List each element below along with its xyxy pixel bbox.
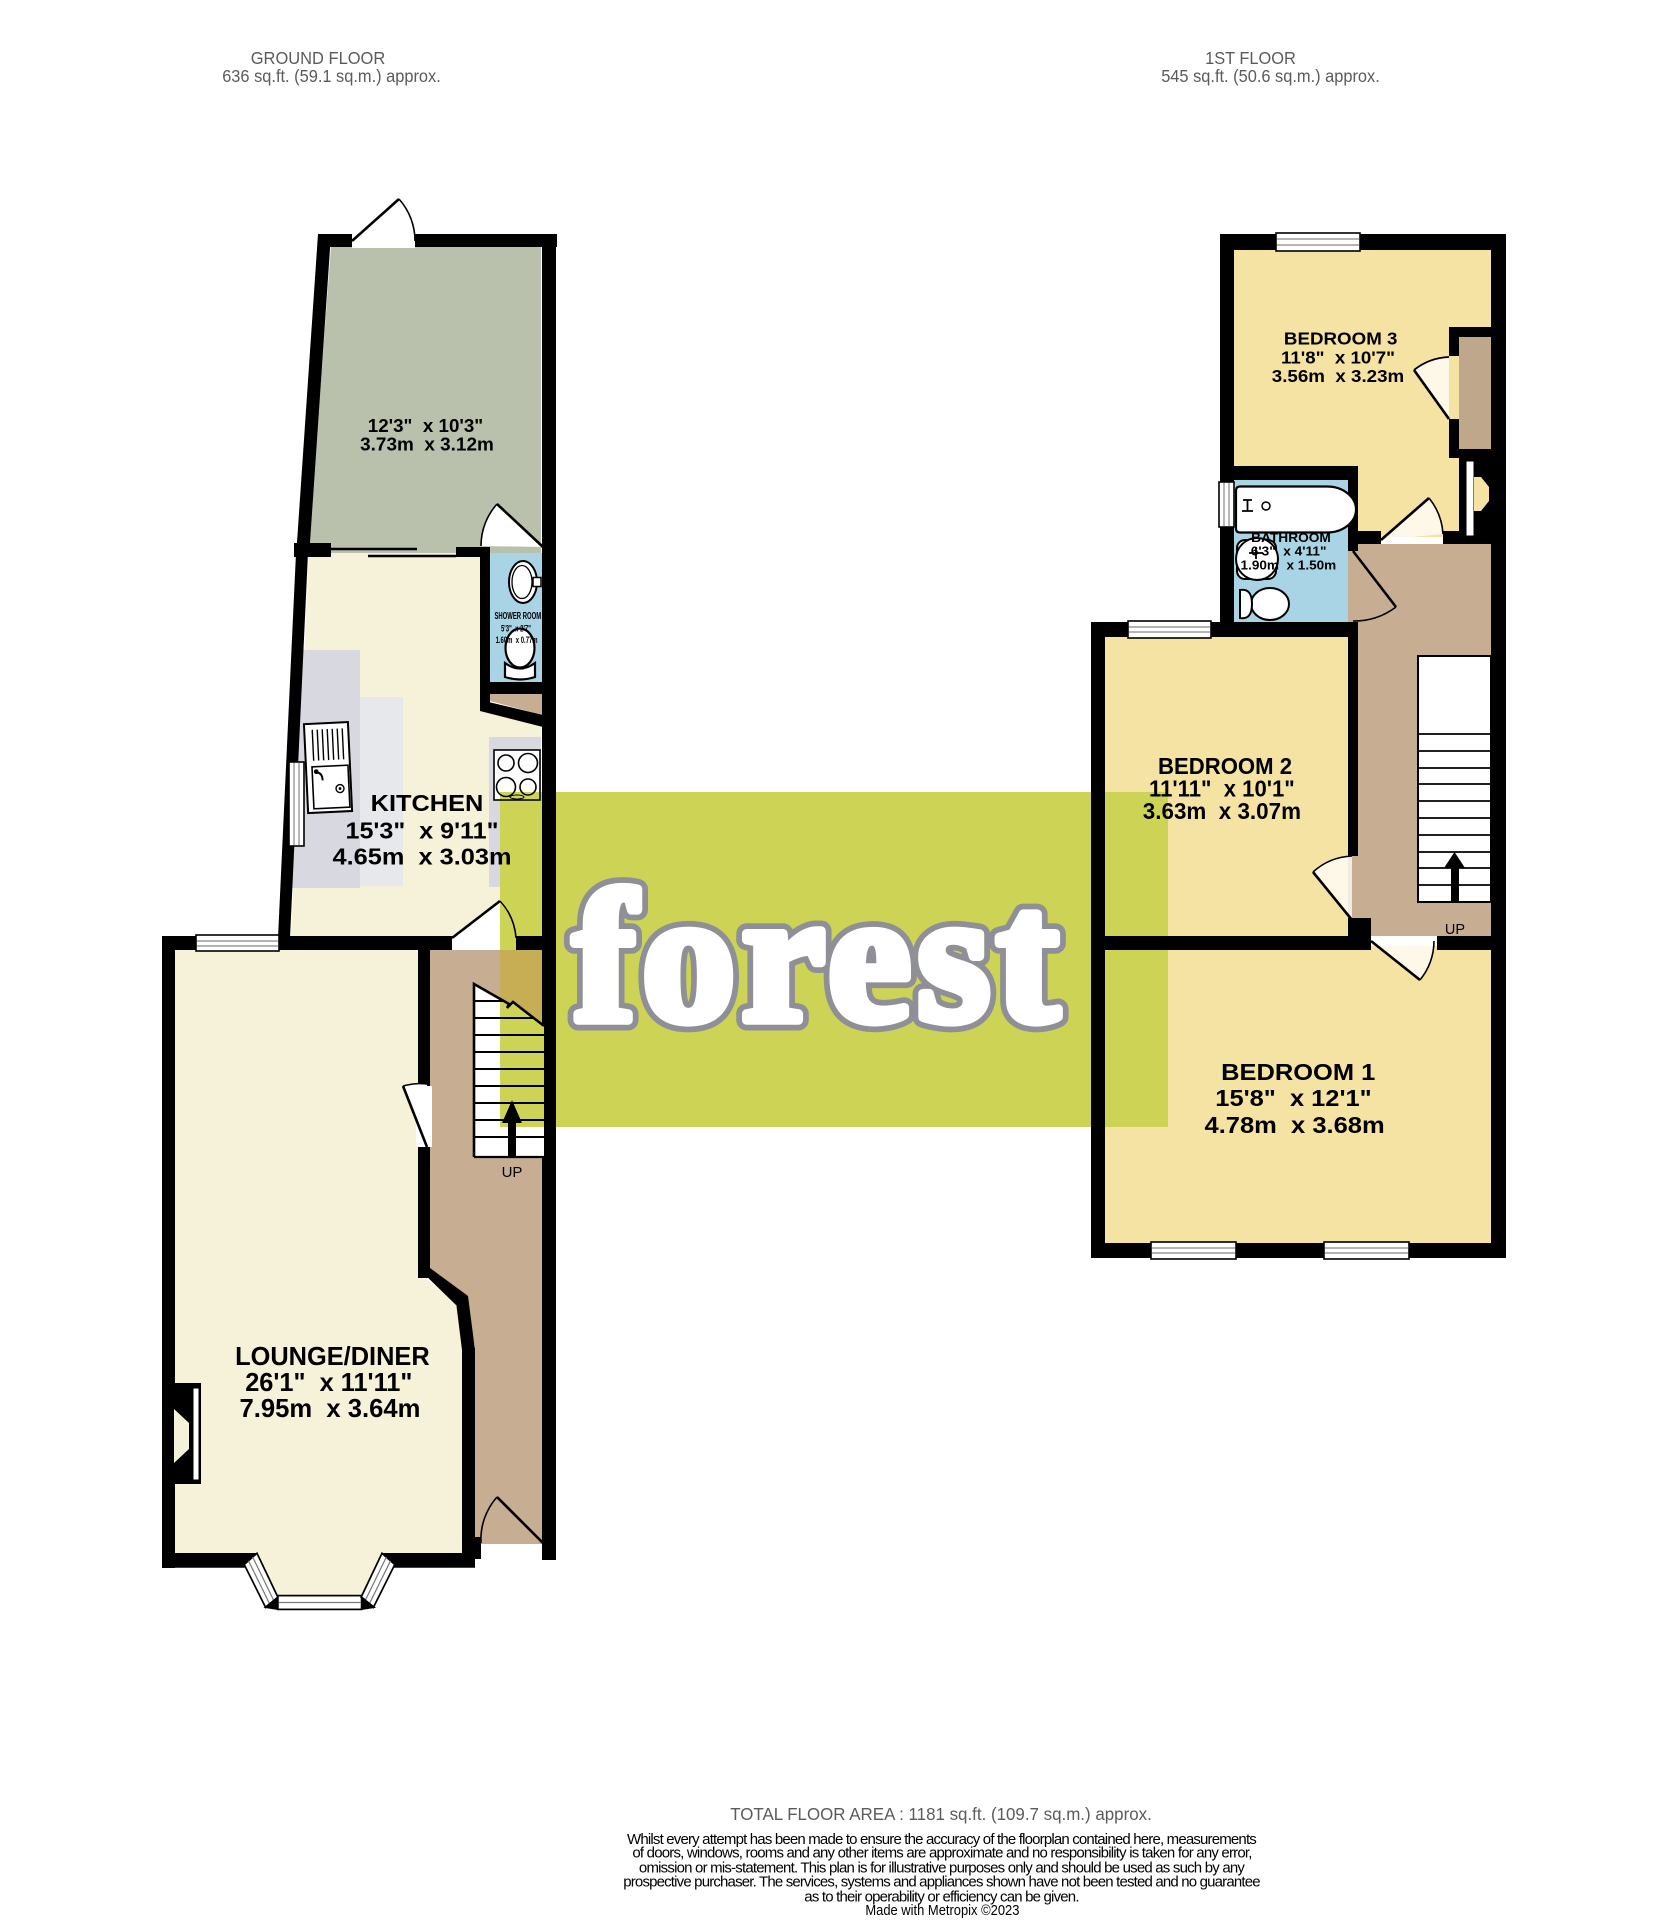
svg-text:forest: forest: [573, 852, 1065, 1061]
svg-text:545 sq.ft. (50.6 sq.m.) approx: 545 sq.ft. (50.6 sq.m.) approx.: [1161, 66, 1380, 86]
svg-text:GROUND FLOOR: GROUND FLOOR: [251, 48, 386, 68]
svg-text:7.95m x 3.64m: 7.95m x 3.64m: [240, 1393, 421, 1423]
svg-text:3.56m x 3.23m: 3.56m x 3.23m: [1272, 366, 1404, 386]
svg-text:BEDROOM 1: BEDROOM 1: [1221, 1059, 1375, 1085]
svg-text:1.60m x 0.77m: 1.60m x 0.77m: [496, 635, 538, 645]
svg-text:UP: UP: [502, 1164, 523, 1181]
svg-text:3.73m x 3.12m: 3.73m x 3.12m: [360, 434, 494, 455]
svg-text:15'3" x 9'11": 15'3" x 9'11": [346, 818, 499, 844]
svg-text:BEDROOM 3: BEDROOM 3: [1284, 329, 1398, 349]
svg-text:4.78m x 3.68m: 4.78m x 3.68m: [1205, 1112, 1385, 1138]
svg-text:5'3" x 2'7": 5'3" x 2'7": [501, 624, 531, 634]
svg-text:1ST FLOOR: 1ST FLOOR: [1205, 48, 1296, 68]
svg-text:Made with Metropix ©2023: Made with Metropix ©2023: [865, 1902, 1019, 1919]
svg-text:636 sq.ft. (59.1 sq.m.) approx: 636 sq.ft. (59.1 sq.m.) approx.: [222, 66, 441, 86]
svg-text:6'3" x 4'11": 6'3" x 4'11": [1251, 544, 1327, 559]
svg-text:KITCHEN: KITCHEN: [371, 790, 484, 816]
svg-text:TOTAL FLOOR AREA : 1181 sq.ft.: TOTAL FLOOR AREA : 1181 sq.ft. (109.7 sq…: [730, 1804, 1152, 1824]
svg-text:1.90m x 1.50m: 1.90m x 1.50m: [1241, 558, 1337, 573]
svg-text:11'8" x 10'7": 11'8" x 10'7": [1281, 348, 1395, 368]
svg-text:SHOWER ROOM: SHOWER ROOM: [494, 610, 541, 622]
svg-text:4.65m x 3.03m: 4.65m x 3.03m: [333, 844, 512, 870]
svg-text:15'8" x 12'1": 15'8" x 12'1": [1215, 1085, 1371, 1111]
svg-text:UP: UP: [1445, 922, 1465, 938]
